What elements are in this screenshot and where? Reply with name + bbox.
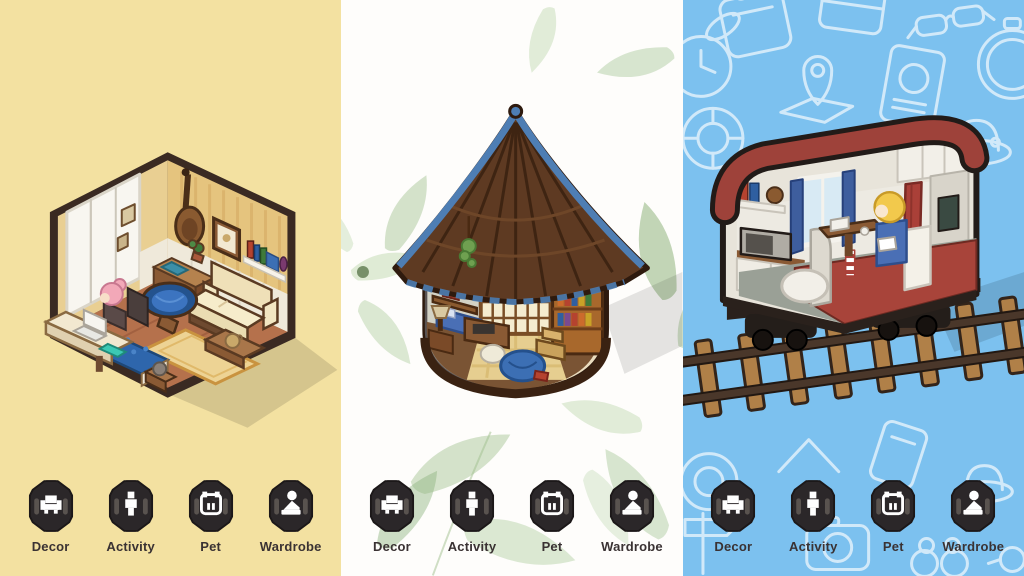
cat-face-icon[interactable] (870, 480, 916, 532)
mountain-icon (778, 440, 838, 472)
menu-item-label: Wardrobe (942, 539, 1004, 554)
rabbit-clock-icon (683, 8, 744, 96)
person-icon[interactable] (449, 480, 495, 532)
library-hut-panel: Decor Activity Pet Wardrobe (341, 0, 682, 576)
map-pin-icon (780, 56, 852, 122)
sunglasses-icon (904, 4, 994, 38)
suitcase-icon (715, 0, 792, 59)
menu-item-wardrobe[interactable]: Wardrobe (938, 480, 1008, 554)
stopwatch-icon (978, 19, 1024, 99)
bottom-menu: Decor Activity Pet Wardrobe (683, 480, 1024, 554)
seat (904, 226, 930, 290)
menu-item-label: Activity (448, 539, 497, 554)
menu-item-label: Decor (32, 539, 70, 554)
white-beanbag (781, 270, 827, 302)
armchair-icon[interactable] (369, 480, 415, 532)
menu-item-label: Pet (542, 539, 563, 554)
menu-item-label: Decor (373, 539, 411, 554)
bottom-menu: Decor Activity Pet Wardrobe (0, 480, 341, 554)
menu-item-label: Activity (789, 539, 838, 554)
menu-item-wardrobe[interactable]: Wardrobe (256, 480, 326, 554)
menu-item-wardrobe[interactable]: Wardrobe (597, 480, 667, 554)
menu-item-label: Wardrobe (601, 539, 663, 554)
wallet-icon (818, 0, 885, 35)
person-icon[interactable] (790, 480, 836, 532)
mannequin-icon[interactable] (609, 480, 655, 532)
menu-item-pet[interactable]: Pet (517, 480, 587, 554)
menu-item-label: Decor (714, 539, 752, 554)
cat-face-icon[interactable] (529, 480, 575, 532)
train-car-body (723, 128, 977, 334)
cat-face-icon[interactable] (188, 480, 234, 532)
bottom-menu: Decor Activity Pet Wardrobe (341, 480, 682, 554)
menu-item-decor[interactable]: Decor (698, 480, 768, 554)
blonde-character (874, 192, 906, 266)
menu-item-decor[interactable]: Decor (357, 480, 427, 554)
menu-item-label: Pet (883, 539, 904, 554)
menu-item-label: Wardrobe (260, 539, 322, 554)
menu-item-decor[interactable]: Decor (16, 480, 86, 554)
menu-item-activity[interactable]: Activity (96, 480, 166, 554)
menu-item-activity[interactable]: Activity (437, 480, 507, 554)
mannequin-icon[interactable] (950, 480, 996, 532)
train-car-panel: Decor Activity Pet Wardrobe (683, 0, 1024, 576)
menu-item-label: Activity (106, 539, 155, 554)
bedroom-panel: Decor Activity Pet Wardrobe (0, 0, 341, 576)
menu-item-pet[interactable]: Pet (858, 480, 928, 554)
mannequin-icon[interactable] (268, 480, 314, 532)
person-icon[interactable] (108, 480, 154, 532)
hut-roof (395, 105, 648, 302)
menu-item-activity[interactable]: Activity (778, 480, 848, 554)
armchair-icon[interactable] (710, 480, 756, 532)
armchair-icon[interactable] (28, 480, 74, 532)
menu-item-label: Pet (200, 539, 221, 554)
menu-item-pet[interactable]: Pet (176, 480, 246, 554)
